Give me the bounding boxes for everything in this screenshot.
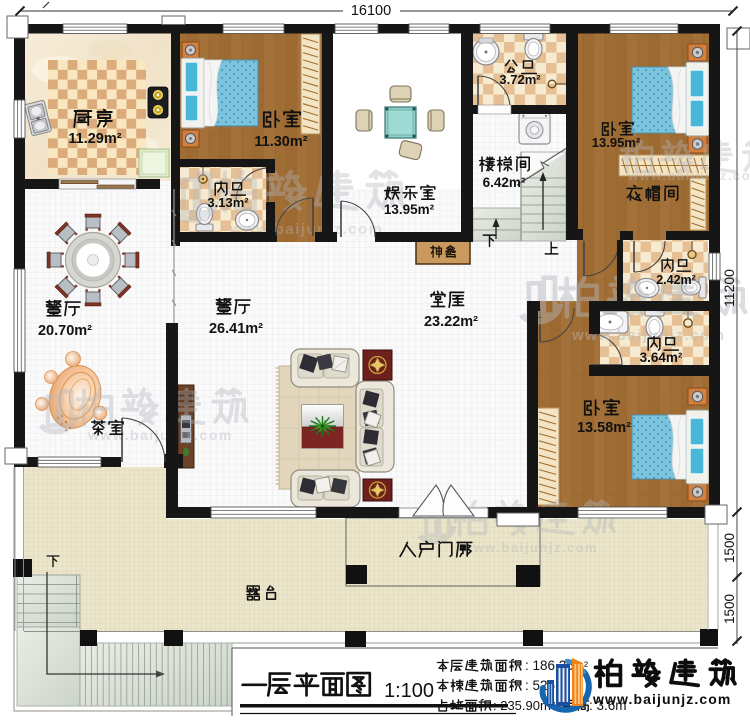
svg-text:26.41m²: 26.41m² [209, 321, 263, 337]
svg-text:13.95m²: 13.95m² [384, 202, 435, 217]
svg-text:3.13m²: 3.13m² [207, 195, 249, 210]
svg-text:23.22m²: 23.22m² [424, 314, 478, 330]
svg-text:1500: 1500 [722, 594, 737, 624]
svg-text:2.42m²: 2.42m² [656, 273, 696, 287]
svg-text:11.29m²: 11.29m² [68, 131, 121, 147]
svg-text:11.30m²: 11.30m² [254, 134, 307, 150]
svg-text:www.baijunjz.com: www.baijunjz.com [461, 540, 598, 555]
svg-text:13.95m²: 13.95m² [592, 135, 641, 150]
svg-text:16100: 16100 [351, 3, 391, 19]
svg-text:3.72m²: 3.72m² [499, 72, 541, 87]
svg-text:www.baijunjz.com: www.baijunjz.com [592, 691, 731, 707]
svg-text:www.baijunjz.com: www.baijunjz.com [627, 168, 750, 183]
svg-text:1:100: 1:100 [384, 680, 434, 702]
svg-text:3.64m²: 3.64m² [640, 350, 683, 365]
svg-text:1500: 1500 [722, 533, 737, 563]
svg-text:11200: 11200 [721, 269, 737, 307]
svg-text:13.58m²: 13.58m² [577, 420, 631, 436]
svg-text:20.70m²: 20.70m² [38, 323, 92, 339]
svg-text:6.42m²: 6.42m² [483, 175, 526, 190]
